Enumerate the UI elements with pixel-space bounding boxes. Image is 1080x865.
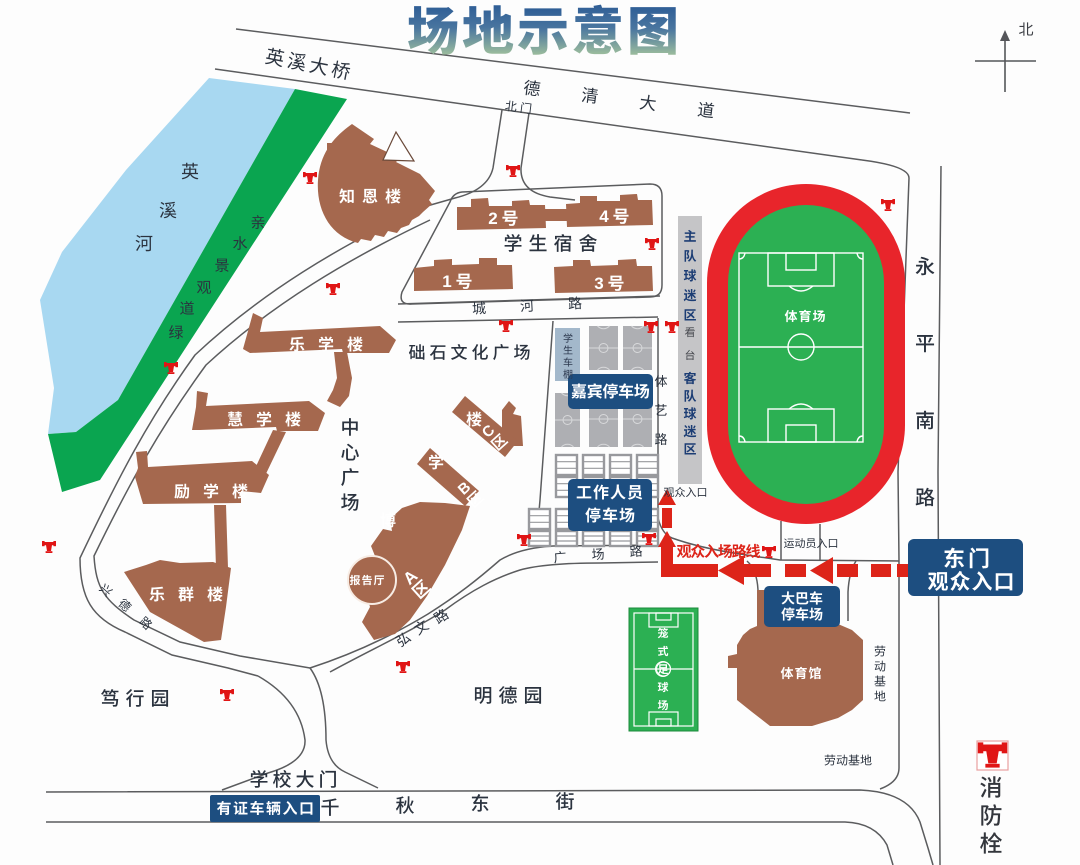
svg-text:3: 3 — [594, 274, 603, 293]
svg-text:2: 2 — [488, 209, 497, 228]
svg-text:1: 1 — [442, 272, 451, 291]
svg-text:4: 4 — [599, 207, 609, 226]
